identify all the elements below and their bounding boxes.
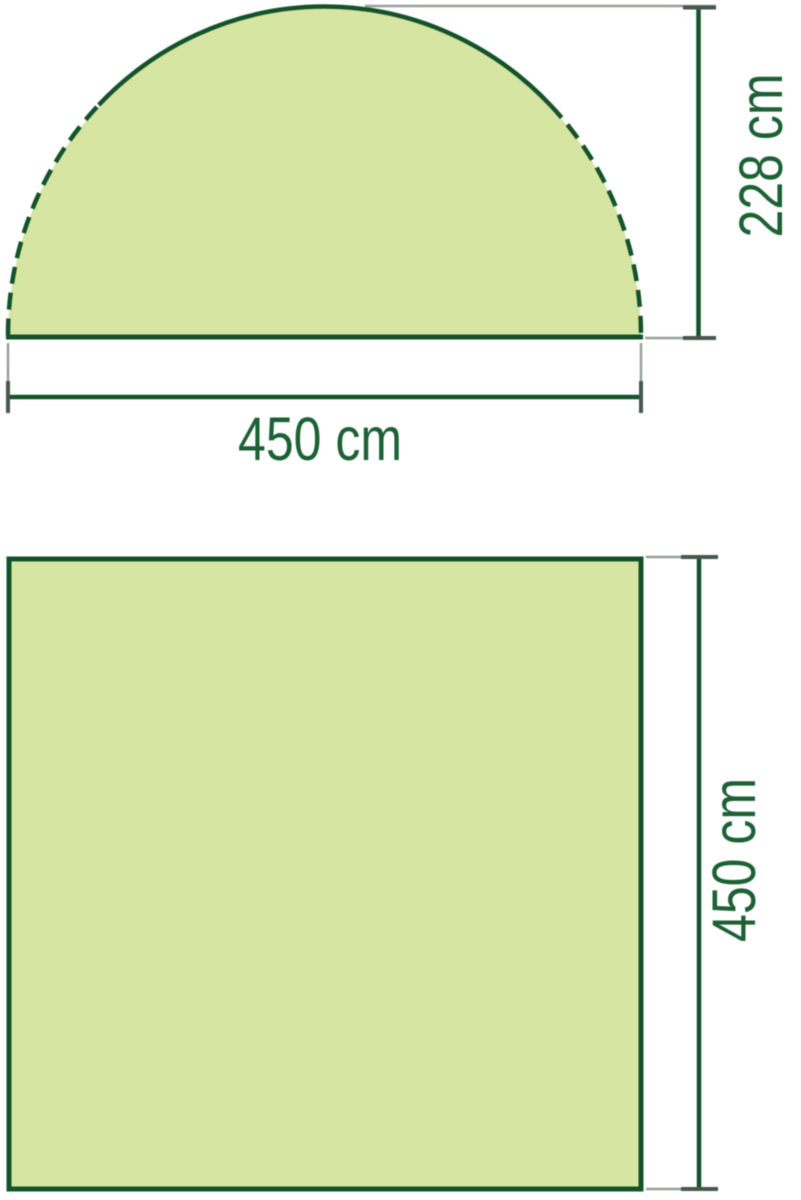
svg-text:228 cm: 228 cm (727, 74, 795, 238)
svg-text:450 cm: 450 cm (700, 778, 768, 942)
svg-text:450 cm: 450 cm (238, 405, 402, 473)
